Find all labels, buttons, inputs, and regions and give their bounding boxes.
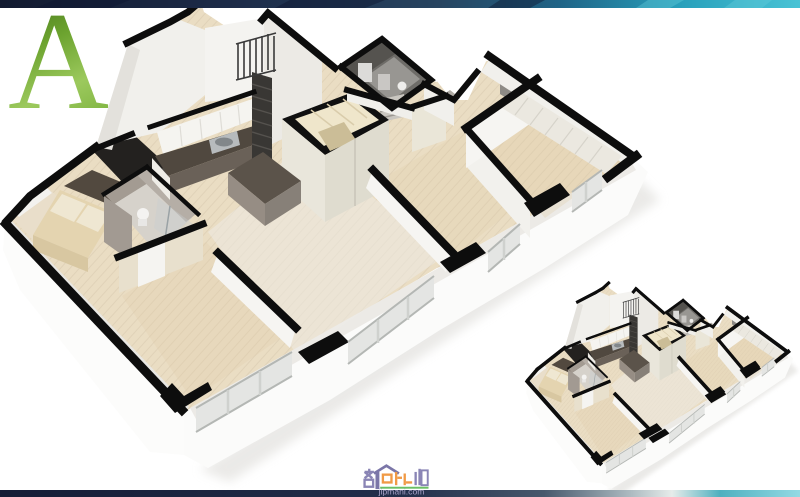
svg-text:jipmani.com: jipmani.com (378, 487, 425, 497)
